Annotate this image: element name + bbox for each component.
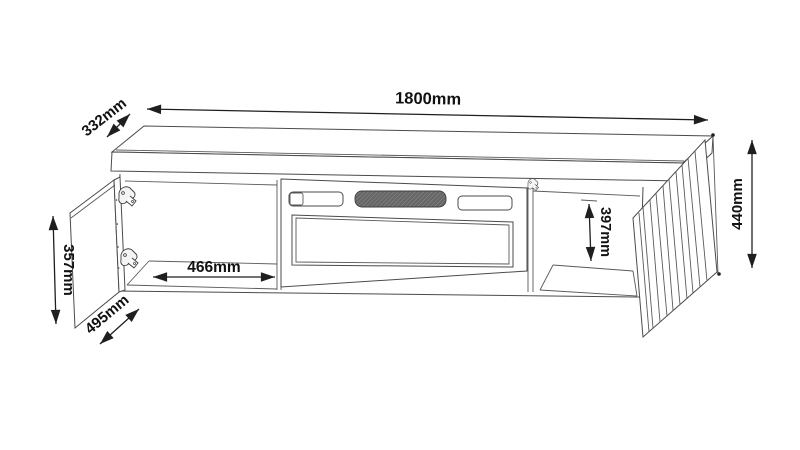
fireplace-window-frame: [292, 215, 513, 267]
dimension-overall-height: 440mm: [729, 140, 752, 268]
fireplace-right-slot: [458, 196, 512, 210]
right-compartment-height-label: 397mm: [597, 207, 613, 257]
carcass-bottom-edge: [114, 291, 640, 297]
overall-width-label: 1800mm: [395, 89, 461, 108]
left-door-hinge-bottom-icon: [121, 249, 138, 268]
dimension-right-compartment-height: 397mm: [581, 200, 613, 261]
dimension-overall-width: 1800mm: [147, 89, 708, 120]
left-door-height-label: 357mm: [60, 244, 77, 296]
corner-dot-top-right: [711, 133, 715, 137]
overall-height-label: 440mm: [729, 178, 746, 230]
left-compartment-width-label: 466mm: [187, 259, 240, 276]
fireplace-control-slot: [289, 192, 343, 206]
corner-dot-bottom-right: [717, 272, 721, 276]
right-compartment: [528, 187, 640, 296]
cabinet-body: [114, 174, 643, 297]
drawing-canvas: 1800mm 332mm 440mm 357mm 495mm 466mm 397…: [0, 0, 800, 450]
depth-label: 332mm: [79, 95, 130, 140]
fireplace-insert: [281, 179, 527, 287]
furniture-technical-drawing: 1800mm 332mm 440mm 357mm 495mm 466mm 397…: [0, 0, 800, 450]
left-door-hinge-top-icon: [119, 187, 136, 206]
fireplace-heater-vent: [355, 191, 446, 207]
top-board: [111, 126, 713, 181]
dimension-depth: 332mm: [79, 95, 130, 140]
